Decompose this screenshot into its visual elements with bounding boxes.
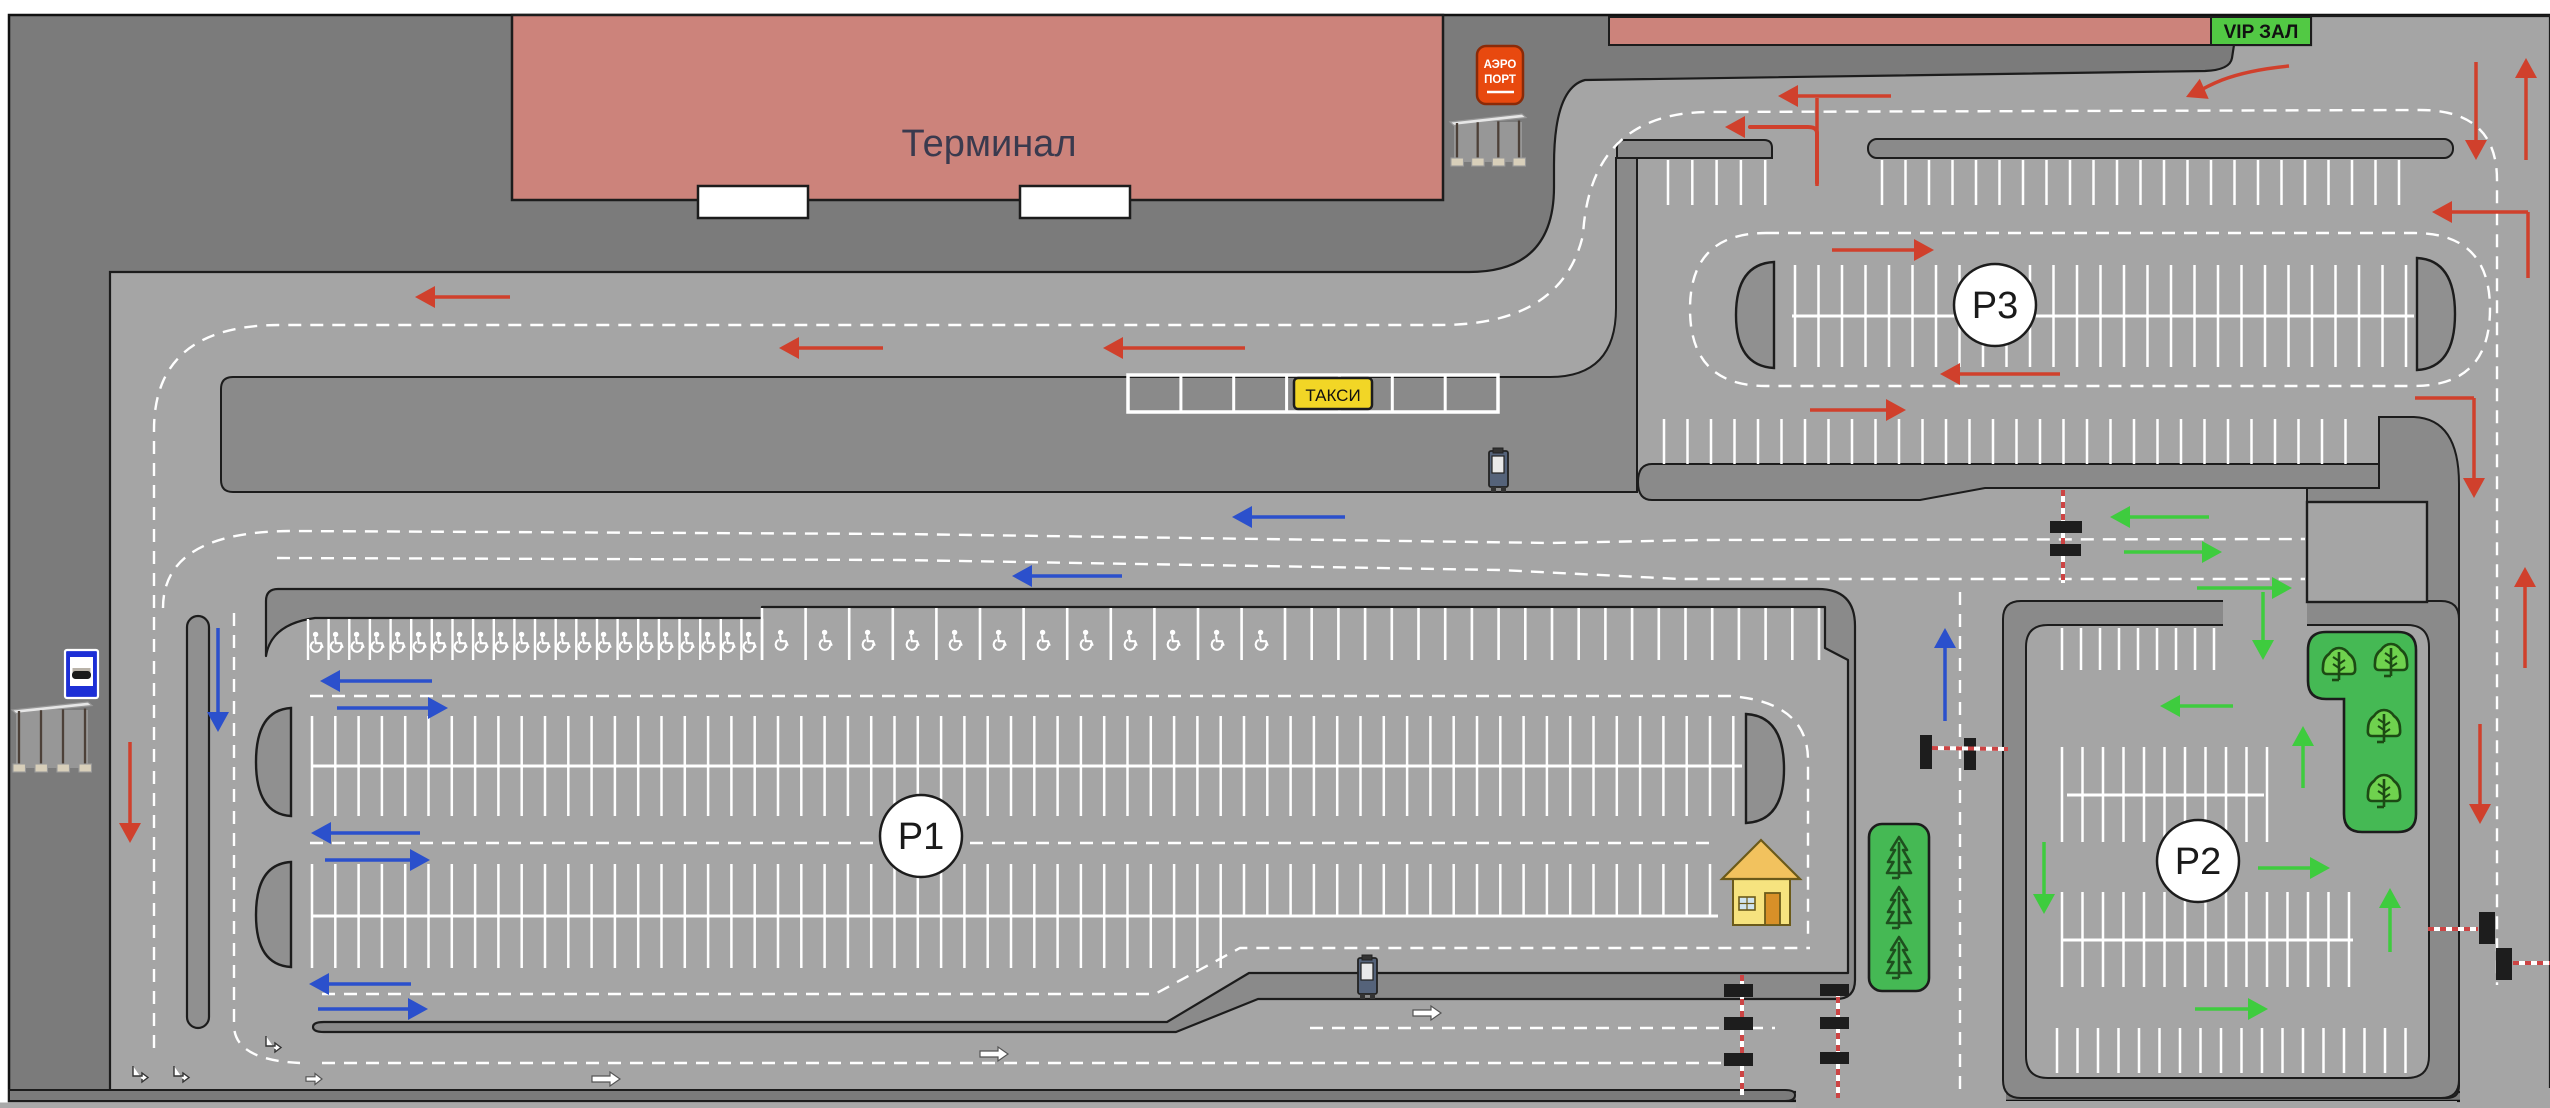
svg-text:P3: P3 (1972, 285, 2018, 327)
svg-text:ПОРТ: ПОРТ (1484, 74, 1516, 86)
svg-text:VIP ЗАЛ: VIP ЗАЛ (2224, 22, 2299, 43)
svg-text:АЭРО: АЭРО (1484, 59, 1517, 71)
svg-text:P1: P1 (898, 816, 944, 858)
svg-text:Терминал: Терминал (902, 123, 1077, 165)
svg-text:ТАКСИ: ТАКСИ (1305, 386, 1360, 405)
svg-text:P2: P2 (2175, 841, 2221, 883)
